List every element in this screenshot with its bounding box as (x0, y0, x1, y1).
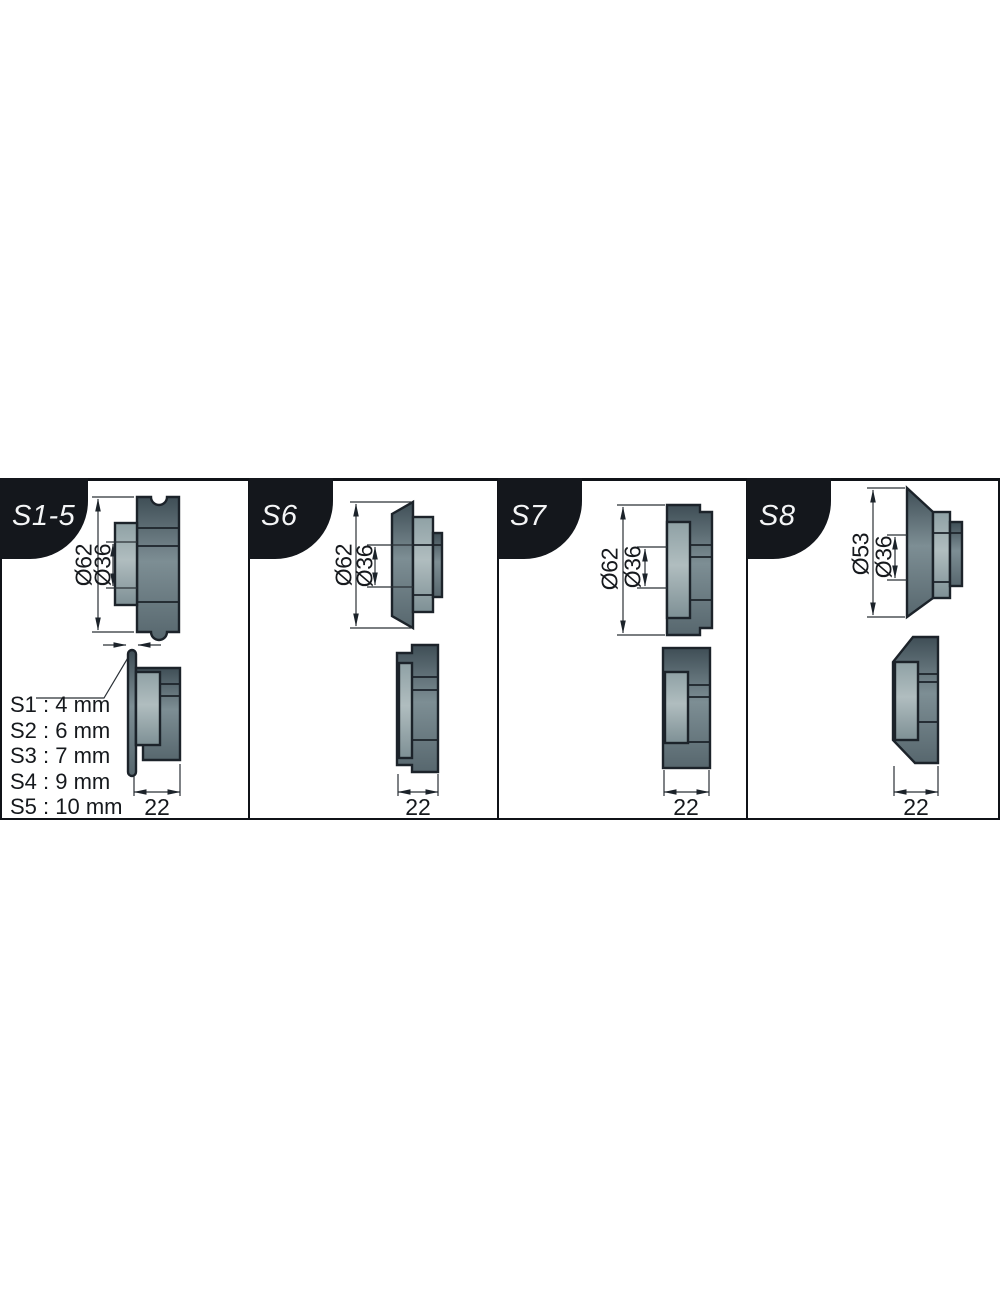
upper-roller-hub (933, 512, 950, 598)
upper-roller-cone (907, 488, 933, 617)
gap-legend-item: S2 : 6 mm (10, 718, 122, 744)
lower-roller-hub (665, 672, 688, 743)
frame-bottom-border (0, 818, 1000, 821)
tab-label: S1-5 (12, 500, 75, 533)
lower-roller-hub (399, 663, 412, 758)
lower-roller-hub (895, 662, 918, 740)
panel-s1-5: Ø62 Ø36 22 S1 : 4 mm S2 : 6 mm S3 : 7 mm… (0, 478, 249, 820)
panel-s6: Ø62 Ø36 22 S6 (249, 478, 498, 820)
gap-legend-item: S5 : 10 mm (10, 794, 122, 820)
upper-roller-cone (392, 502, 413, 628)
gap-legend-item: S4 : 9 mm (10, 769, 122, 795)
roller-profiles-diagram: Ø62 Ø36 22 S1 : 4 mm S2 : 6 mm S3 : 7 mm… (0, 478, 1000, 820)
tab-label: S6 (261, 500, 297, 533)
upper-roller-body (137, 497, 179, 640)
lower-roller-hub (136, 672, 160, 745)
gap-leader-line (36, 651, 132, 698)
upper-roller-step (950, 522, 962, 586)
tab-label: S7 (510, 500, 546, 533)
upper-roller-hub (413, 517, 433, 612)
panel-s8: Ø53 Ø36 22 S8 (747, 478, 1000, 820)
upper-roller-hub (667, 522, 690, 618)
gap-size-legend: S1 : 4 mm S2 : 6 mm S3 : 7 mm S4 : 9 mm … (10, 692, 122, 820)
tab-label: S8 (759, 500, 795, 533)
hub-diameter-label: Ø36 (871, 536, 898, 579)
hub-diameter-label: Ø36 (90, 544, 117, 587)
gap-legend-item: S3 : 7 mm (10, 743, 122, 769)
upper-roller-hub (115, 523, 137, 605)
upper-roller-step (433, 533, 442, 597)
hub-diameter-label: Ø36 (620, 546, 647, 589)
hub-diameter-label: Ø36 (352, 545, 379, 588)
panel-s7: Ø62 Ø36 22 S7 (498, 478, 747, 820)
gap-legend-item: S1 : 4 mm (10, 692, 122, 718)
